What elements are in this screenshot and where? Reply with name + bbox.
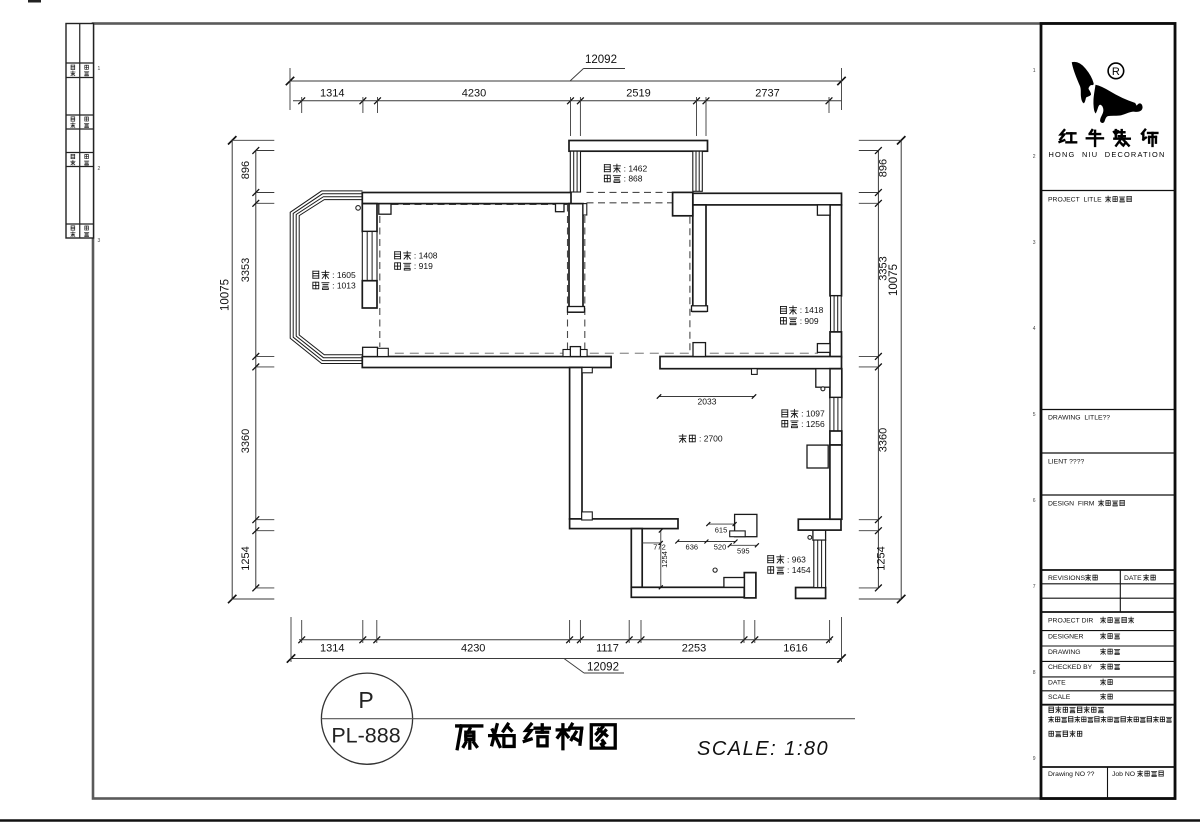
- svg-text:HONG NIU DECORATION: HONG NIU DECORATION: [1048, 150, 1165, 159]
- svg-text:6: 6: [1033, 498, 1036, 504]
- svg-text:: 1013: : 1013: [332, 281, 356, 291]
- svg-text:PL-888: PL-888: [331, 724, 400, 748]
- svg-text:12092: 12092: [585, 54, 617, 66]
- svg-text:1254: 1254: [660, 551, 669, 568]
- svg-text:5: 5: [1033, 412, 1036, 418]
- svg-text:2: 2: [98, 166, 101, 172]
- svg-text:1314: 1314: [320, 88, 344, 100]
- svg-text:: 919: : 919: [414, 261, 433, 271]
- svg-text:DATE: DATE: [1048, 679, 1066, 686]
- svg-text:9: 9: [1033, 756, 1036, 762]
- svg-text:772: 772: [653, 543, 666, 552]
- svg-text:636: 636: [686, 543, 699, 552]
- svg-text:: 1462: : 1462: [624, 163, 648, 173]
- svg-text:: 963: : 963: [787, 554, 806, 564]
- svg-text:8: 8: [1033, 670, 1036, 676]
- svg-text:520: 520: [714, 543, 727, 552]
- svg-text:: 1454: : 1454: [787, 565, 811, 575]
- svg-text:896: 896: [878, 159, 890, 177]
- svg-text:2737: 2737: [755, 88, 779, 100]
- svg-text:SCALE: SCALE: [1048, 694, 1071, 701]
- svg-text:: 1418: : 1418: [800, 305, 824, 315]
- svg-text:1314: 1314: [320, 643, 344, 655]
- svg-text:3360: 3360: [240, 429, 252, 453]
- svg-text:Drawing NO ??: Drawing NO ??: [1048, 771, 1095, 778]
- svg-text:3360: 3360: [878, 428, 890, 452]
- svg-text:: 1256: : 1256: [801, 419, 825, 429]
- svg-text:CHECKED BY: CHECKED BY: [1048, 664, 1093, 671]
- svg-text:: 868: : 868: [624, 174, 643, 184]
- svg-text:595: 595: [737, 546, 750, 555]
- svg-text:SCALE: 1:80: SCALE: 1:80: [697, 738, 829, 760]
- svg-text:2: 2: [1033, 154, 1036, 160]
- svg-text:896: 896: [240, 161, 252, 179]
- svg-text:3: 3: [1033, 240, 1036, 246]
- svg-text:: 2700: : 2700: [699, 434, 723, 444]
- svg-text:R: R: [1112, 66, 1120, 78]
- svg-text:DRAWING LITLE??: DRAWING LITLE??: [1048, 414, 1110, 421]
- svg-text:PROJECT DIR: PROJECT DIR: [1048, 617, 1093, 624]
- svg-text:2519: 2519: [626, 88, 650, 100]
- svg-text:4230: 4230: [461, 643, 485, 655]
- svg-text:7: 7: [1033, 584, 1036, 590]
- svg-text:3353: 3353: [240, 258, 252, 282]
- svg-text:: 1408: : 1408: [414, 251, 438, 261]
- svg-text:Job NO: Job NO: [1112, 771, 1135, 778]
- svg-text:2033: 2033: [698, 397, 717, 407]
- svg-text:4: 4: [1033, 326, 1036, 332]
- svg-text:DRAWING: DRAWING: [1048, 649, 1081, 656]
- svg-text:3: 3: [98, 238, 101, 244]
- svg-text:1254: 1254: [876, 546, 888, 570]
- svg-text:P: P: [358, 687, 373, 713]
- svg-text:10075: 10075: [220, 279, 232, 311]
- svg-text:1254: 1254: [240, 546, 252, 570]
- svg-text:1: 1: [98, 66, 101, 72]
- svg-text:DESIGNER: DESIGNER: [1048, 633, 1084, 640]
- svg-text:PROJECT LITLE: PROJECT LITLE: [1048, 196, 1102, 203]
- svg-text:4230: 4230: [462, 88, 486, 100]
- svg-text:REVISIONS: REVISIONS: [1048, 575, 1085, 582]
- svg-text:: 1097: : 1097: [801, 409, 825, 419]
- svg-text:1117: 1117: [596, 643, 619, 655]
- svg-text:LIENT ????: LIENT ????: [1048, 458, 1084, 465]
- svg-text:12092: 12092: [587, 662, 619, 674]
- svg-text:10075: 10075: [888, 264, 900, 296]
- svg-text:615: 615: [715, 526, 728, 535]
- svg-text:DESIGN FIRM: DESIGN FIRM: [1048, 500, 1095, 507]
- svg-text:: 1605: : 1605: [332, 270, 356, 280]
- svg-text:: 909: : 909: [800, 316, 819, 326]
- svg-text:DATE: DATE: [1124, 575, 1142, 582]
- svg-text:1: 1: [1033, 68, 1036, 74]
- svg-text:2253: 2253: [682, 643, 706, 655]
- svg-text:1616: 1616: [783, 643, 807, 655]
